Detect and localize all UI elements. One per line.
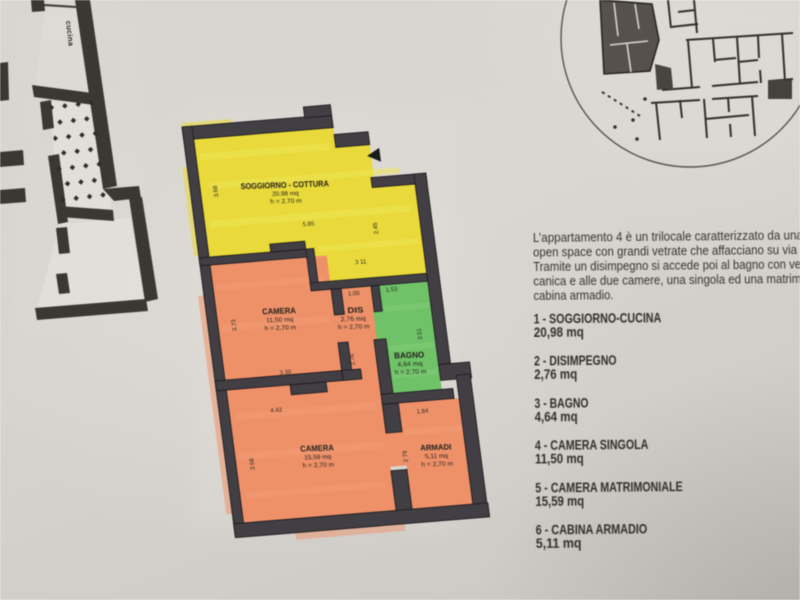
svg-text:1.84: 1.84 — [416, 408, 429, 415]
svg-text:4.42: 4.42 — [270, 407, 283, 414]
svg-text:5.85: 5.85 — [302, 221, 315, 228]
svg-text:2,76 mq: 2,76 mq — [534, 367, 577, 382]
svg-text:4,64 mq: 4,64 mq — [397, 361, 423, 369]
svg-text:DIS: DIS — [347, 305, 365, 315]
svg-text:15,59 mq: 15,59 mq — [304, 454, 332, 462]
svg-text:4,64 mq: 4,64 mq — [535, 409, 578, 424]
svg-text:3.30: 3.30 — [279, 370, 292, 377]
svg-text:CAMERA: CAMERA — [262, 305, 296, 316]
svg-text:11,50 mq: 11,50 mq — [535, 451, 584, 466]
svg-text:CAMERA: CAMERA — [300, 443, 334, 454]
svg-text:5,11 mq: 5,11 mq — [536, 536, 582, 551]
svg-text:h = 2,70 m: h = 2,70 m — [264, 324, 296, 332]
svg-text:h = 2,70 m: h = 2,70 m — [338, 323, 370, 331]
svg-text:15,59 mq: 15,59 mq — [535, 493, 584, 508]
svg-text:h = 2,70 m: h = 2,70 m — [302, 461, 334, 469]
svg-text:1.00: 1.00 — [348, 291, 361, 298]
svg-text:h = 2,70 m: h = 2,70 m — [395, 368, 427, 376]
svg-text:2,76 mq: 2,76 mq — [340, 315, 366, 323]
svg-text:BAGNO: BAGNO — [394, 349, 425, 360]
svg-text:20,98 mq: 20,98 mq — [534, 325, 584, 340]
svg-text:h = 2.70 m: h = 2.70 m — [270, 198, 302, 206]
svg-text:5,11 mq: 5,11 mq — [425, 453, 449, 461]
svg-text:11,50 mq: 11,50 mq — [266, 316, 294, 324]
svg-text:ARMADI: ARMADI — [420, 443, 452, 453]
svg-text:20.98 mq: 20.98 mq — [272, 190, 300, 198]
svg-text:3 11: 3 11 — [355, 259, 368, 266]
svg-text:1.53: 1.53 — [385, 287, 398, 294]
svg-text:canica e alle due camere, una: canica e alle due camere, una singola ed… — [533, 271, 800, 289]
svg-text:cabina armadio.: cabina armadio. — [533, 287, 613, 303]
svg-text:h = 2,70 m: h = 2,70 m — [421, 460, 453, 468]
